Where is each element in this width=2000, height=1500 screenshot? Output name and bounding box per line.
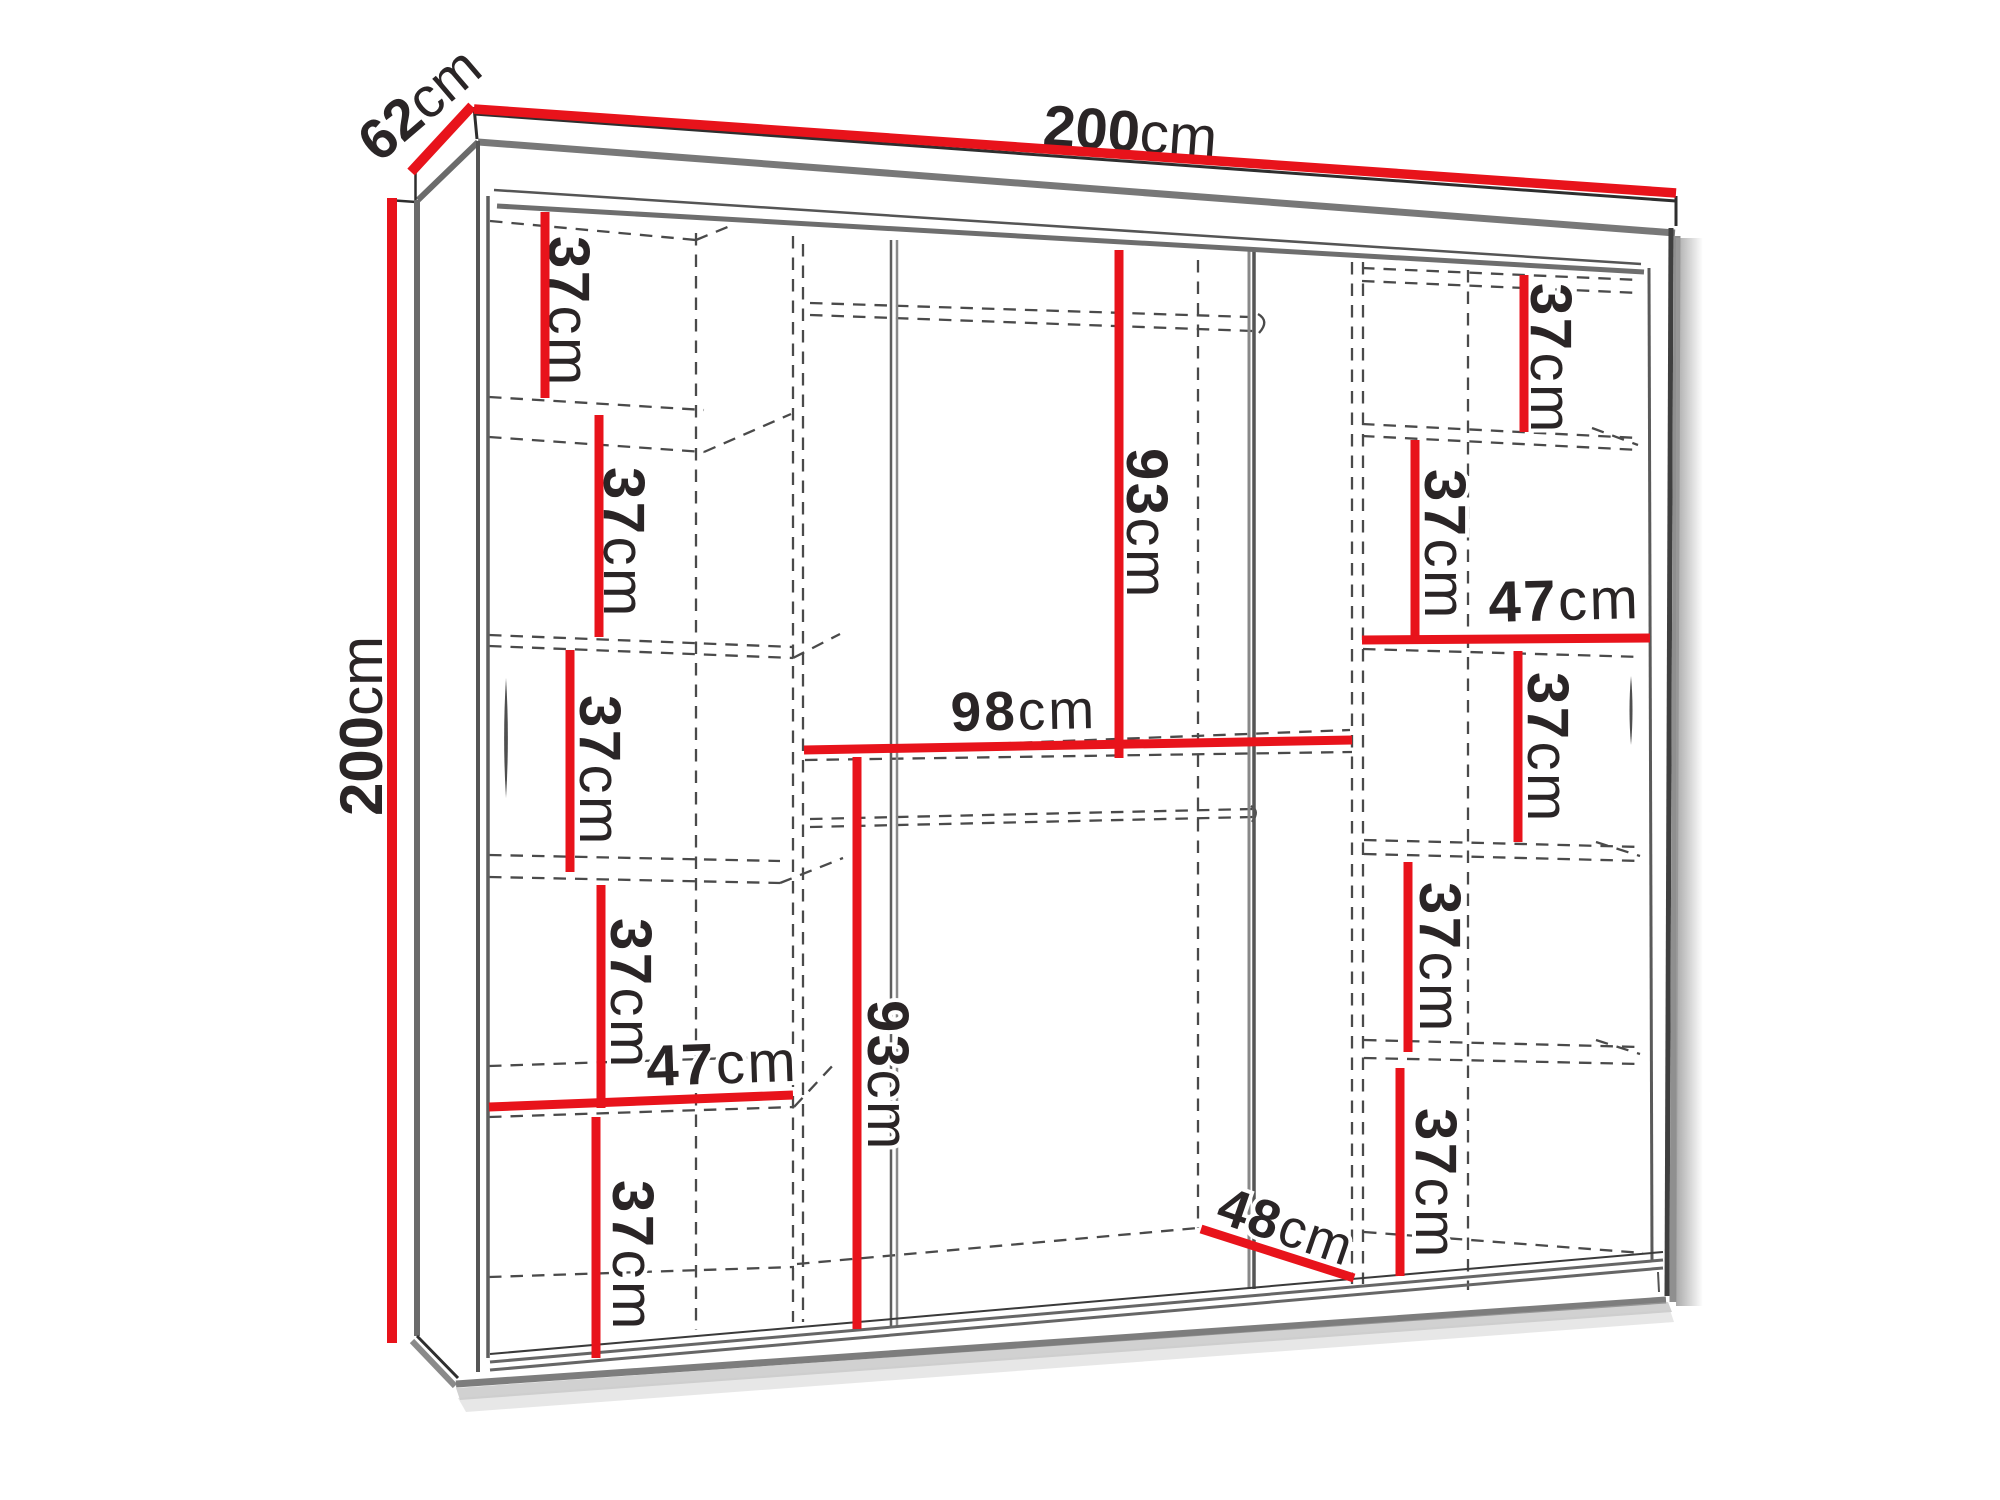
svg-text:47cm: 47cm [645, 1029, 799, 1099]
svg-text:98cm: 98cm [950, 678, 1098, 743]
svg-text:47cm: 47cm [1488, 566, 1641, 635]
svg-text:37cm: 37cm [1407, 882, 1472, 1034]
svg-text:37cm: 37cm [1515, 672, 1580, 824]
svg-text:37cm: 37cm [1412, 469, 1477, 621]
svg-text:37cm: 37cm [1403, 1108, 1468, 1260]
svg-text:37cm: 37cm [567, 695, 632, 847]
svg-text:200cm: 200cm [328, 636, 395, 816]
svg-text:93cm: 93cm [1114, 448, 1179, 600]
svg-text:37cm: 37cm [600, 1180, 665, 1332]
svg-text:93cm: 93cm [855, 1000, 920, 1152]
